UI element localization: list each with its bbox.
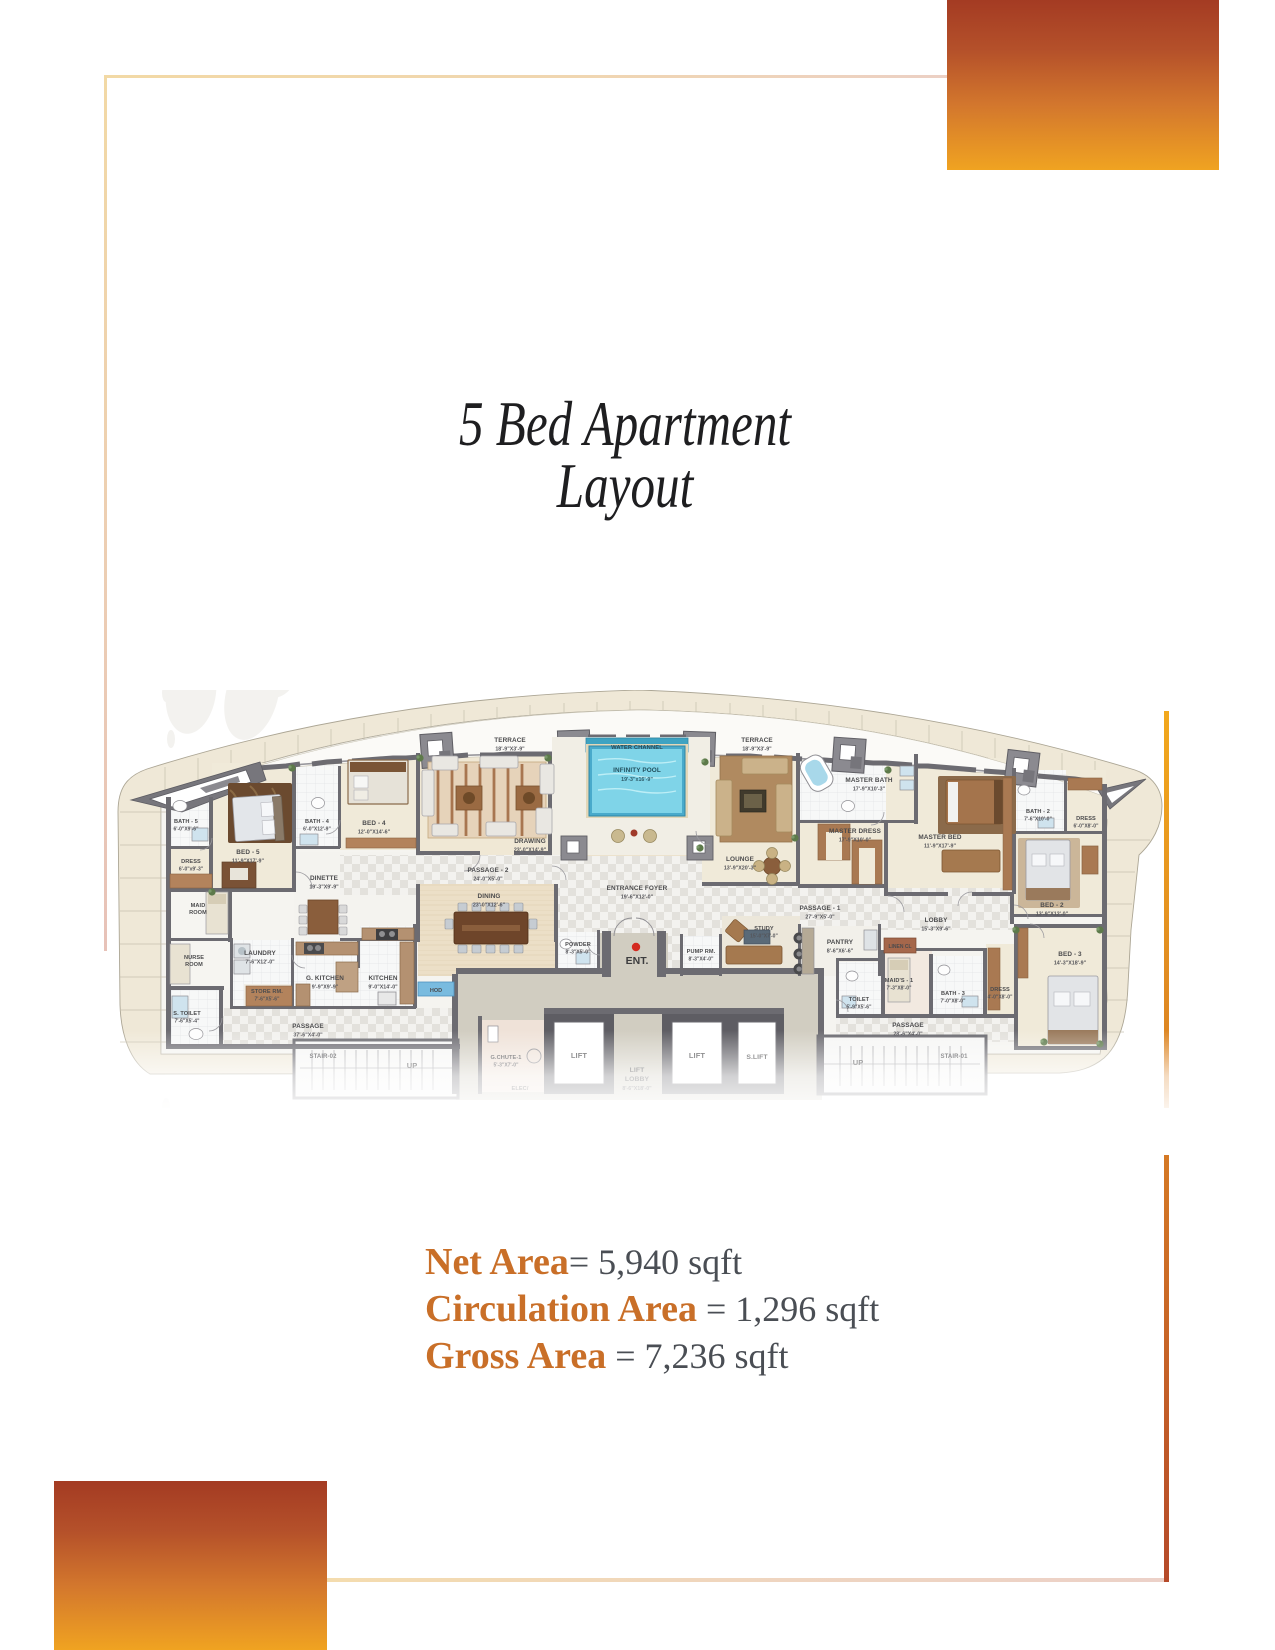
svg-text:6'-0"x9'-3": 6'-0"x9'-3" xyxy=(179,867,204,873)
svg-text:7'-6"X12'-0": 7'-6"X12'-0" xyxy=(245,960,275,966)
svg-text:7'-6"X5'-4": 7'-6"X5'-4" xyxy=(175,1019,201,1025)
svg-text:17'-9"X10'-0": 17'-9"X10'-0" xyxy=(839,838,872,844)
svg-text:13'-9"X20'-3": 13'-9"X20'-3" xyxy=(724,866,757,872)
svg-text:LINEN CL: LINEN CL xyxy=(888,944,911,950)
svg-text:POWDER: POWDER xyxy=(565,942,591,948)
svg-text:BATH - 5: BATH - 5 xyxy=(174,819,198,825)
svg-text:11'-9"X17'-9": 11'-9"X17'-9" xyxy=(232,859,264,865)
svg-text:BED - 2: BED - 2 xyxy=(1040,902,1064,909)
svg-text:S. TOILET: S. TOILET xyxy=(173,1011,201,1017)
svg-text:NURSE: NURSE xyxy=(184,955,204,961)
svg-text:INFINITY POOL: INFINITY POOL xyxy=(613,767,661,774)
svg-text:9'-9"X9'-9": 9'-9"X9'-9" xyxy=(312,985,339,991)
svg-text:18'-9"X3'-9": 18'-9"X3'-9" xyxy=(742,747,772,753)
svg-text:13'-9"X12'-0": 13'-9"X12'-0" xyxy=(1036,912,1069,918)
svg-text:DRAWING: DRAWING xyxy=(514,838,546,845)
svg-text:BED - 5: BED - 5 xyxy=(236,849,260,856)
svg-text:DRESS: DRESS xyxy=(1076,816,1096,822)
svg-text:DINETTE: DINETTE xyxy=(310,875,339,882)
svg-text:ROOM: ROOM xyxy=(189,910,207,916)
svg-text:4'-0"X8'-0": 4'-0"X8'-0" xyxy=(988,995,1014,1001)
svg-text:6'-0"X12'-9": 6'-0"X12'-9" xyxy=(303,827,331,833)
svg-text:ROOM: ROOM xyxy=(185,962,203,968)
svg-text:7'-3"X8'-0": 7'-3"X8'-0" xyxy=(887,986,913,992)
svg-text:23'-0"X14'-9": 23'-0"X14'-9" xyxy=(514,848,547,854)
svg-text:LAUNDRY: LAUNDRY xyxy=(244,950,276,957)
svg-text:G. KITCHEN: G. KITCHEN xyxy=(306,975,344,982)
svg-text:BATH - 3: BATH - 3 xyxy=(941,991,965,997)
svg-text:19'-3"x16'-9": 19'-3"x16'-9" xyxy=(621,777,653,783)
svg-text:PUMP RM.: PUMP RM. xyxy=(687,949,716,955)
svg-text:6'-0"X9'-6": 6'-0"X9'-6" xyxy=(174,827,200,833)
svg-text:DINING: DINING xyxy=(478,893,501,900)
svg-text:HOD: HOD xyxy=(430,988,442,994)
svg-text:LOUNGE: LOUNGE xyxy=(726,856,755,863)
svg-text:MASTER BATH: MASTER BATH xyxy=(845,777,892,784)
svg-text:19'-3"X9'-9": 19'-3"X9'-9" xyxy=(309,885,339,891)
svg-text:8'-6"X6'-6": 8'-6"X6'-6" xyxy=(827,949,854,955)
svg-text:DRESS: DRESS xyxy=(181,859,201,865)
svg-text:TOILET: TOILET xyxy=(849,997,870,1003)
svg-text:BED - 4: BED - 4 xyxy=(362,820,386,827)
svg-text:MASTER BED: MASTER BED xyxy=(918,834,962,841)
svg-text:17'-9"X10'-3": 17'-9"X10'-3" xyxy=(853,787,886,793)
svg-text:27'-9"X5'-0": 27'-9"X5'-0" xyxy=(805,915,835,921)
svg-text:PASSAGE: PASSAGE xyxy=(292,1023,324,1030)
svg-text:BED - 3: BED - 3 xyxy=(1058,951,1082,958)
svg-text:ENTRANCE FOYER: ENTRANCE FOYER xyxy=(607,885,668,892)
svg-text:MAID'S - 1: MAID'S - 1 xyxy=(885,978,913,984)
svg-text:LOBBY: LOBBY xyxy=(925,917,949,924)
svg-text:19'-6"X12'-0": 19'-6"X12'-0" xyxy=(621,895,654,901)
svg-text:18'-9"X3'-9": 18'-9"X3'-9" xyxy=(495,747,525,753)
svg-text:PASSAGE: PASSAGE xyxy=(892,1022,924,1029)
svg-text:11'-9"X17'-9": 11'-9"X17'-9" xyxy=(924,844,956,850)
svg-text:ENT.: ENT. xyxy=(626,955,649,967)
svg-text:DRESS: DRESS xyxy=(990,987,1010,993)
svg-text:12'-0"X14'-6": 12'-0"X14'-6" xyxy=(358,830,391,836)
svg-text:24'-0"X5'-0": 24'-0"X5'-0" xyxy=(473,877,503,883)
svg-text:8'-3"X4'-0": 8'-3"X4'-0" xyxy=(689,957,715,963)
svg-text:PASSAGE - 1: PASSAGE - 1 xyxy=(799,905,840,912)
svg-text:23'-0"X12'-6": 23'-0"X12'-6" xyxy=(473,903,506,909)
svg-text:TERRACE: TERRACE xyxy=(494,737,526,744)
svg-text:8'-3"X5'-0": 8'-3"X5'-0" xyxy=(566,950,592,956)
svg-text:7'-6"X10'-0": 7'-6"X10'-0" xyxy=(1024,817,1052,823)
svg-text:15'-0"X7'-0": 15'-0"X7'-0" xyxy=(750,934,778,940)
svg-text:PANTRY: PANTRY xyxy=(827,939,854,946)
svg-text:9'-0"X14'-0": 9'-0"X14'-0" xyxy=(368,985,398,991)
svg-text:5'-9"X5'-6": 5'-9"X5'-6" xyxy=(847,1005,873,1011)
svg-text:BATH - 2: BATH - 2 xyxy=(1026,809,1050,815)
svg-text:STUDY: STUDY xyxy=(754,926,774,932)
svg-text:7'-0"X8'-0": 7'-0"X8'-0" xyxy=(941,999,967,1005)
svg-text:STORE RM.: STORE RM. xyxy=(251,989,283,995)
svg-text:14'-3"X18'-9": 14'-3"X18'-9" xyxy=(1054,961,1087,967)
svg-text:KITCHEN: KITCHEN xyxy=(368,975,397,982)
svg-text:PASSAGE - 2: PASSAGE - 2 xyxy=(467,867,508,874)
svg-text:7'-6"X5'-6": 7'-6"X5'-6" xyxy=(255,997,281,1003)
svg-text:TERRACE: TERRACE xyxy=(741,737,773,744)
svg-text:MAID: MAID xyxy=(191,903,206,909)
svg-text:WATER CHANNEL: WATER CHANNEL xyxy=(611,745,663,751)
svg-text:6'-0"X8'-0": 6'-0"X8'-0" xyxy=(1074,824,1100,830)
svg-text:15'-3"X9'-6": 15'-3"X9'-6" xyxy=(921,927,951,933)
svg-text:MASTER DRESS: MASTER DRESS xyxy=(829,828,882,835)
svg-text:BATH - 4: BATH - 4 xyxy=(305,819,330,825)
